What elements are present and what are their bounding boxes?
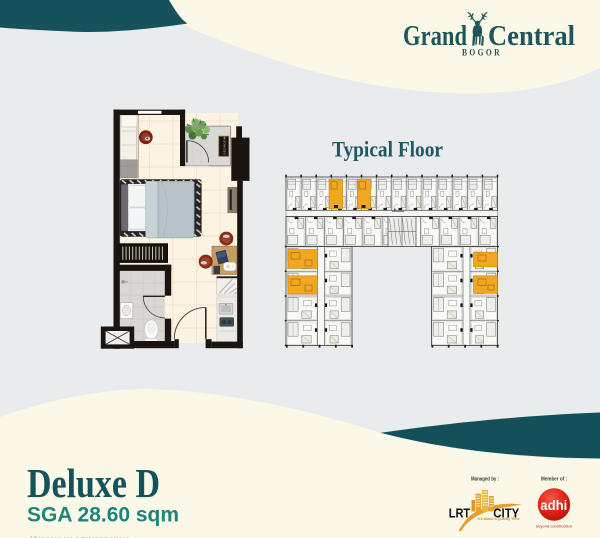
- svg-text:BOGOR: BOGOR: [462, 49, 502, 59]
- svg-text:It's about a Quality Time: It's about a Quality Time: [478, 517, 520, 521]
- svg-text:beyond construction: beyond construction: [536, 525, 572, 529]
- svg-text:Deluxe D: Deluxe D: [27, 460, 160, 506]
- svg-text:adhi: adhi: [540, 498, 567, 514]
- svg-text:SGA 28.60 sqm: SGA 28.60 sqm: [27, 503, 179, 527]
- svg-text:Central: Central: [488, 20, 575, 52]
- svg-text:Member of :: Member of :: [541, 477, 567, 483]
- svg-text:LRT: LRT: [449, 505, 471, 520]
- svg-text:Managed by :: Managed by :: [471, 477, 499, 483]
- svg-text:BEDROOM AC: BEDROOM AC: [223, 130, 227, 154]
- svg-text:Typical Floor: Typical Floor: [332, 137, 443, 162]
- svg-text:Grand: Grand: [403, 20, 467, 52]
